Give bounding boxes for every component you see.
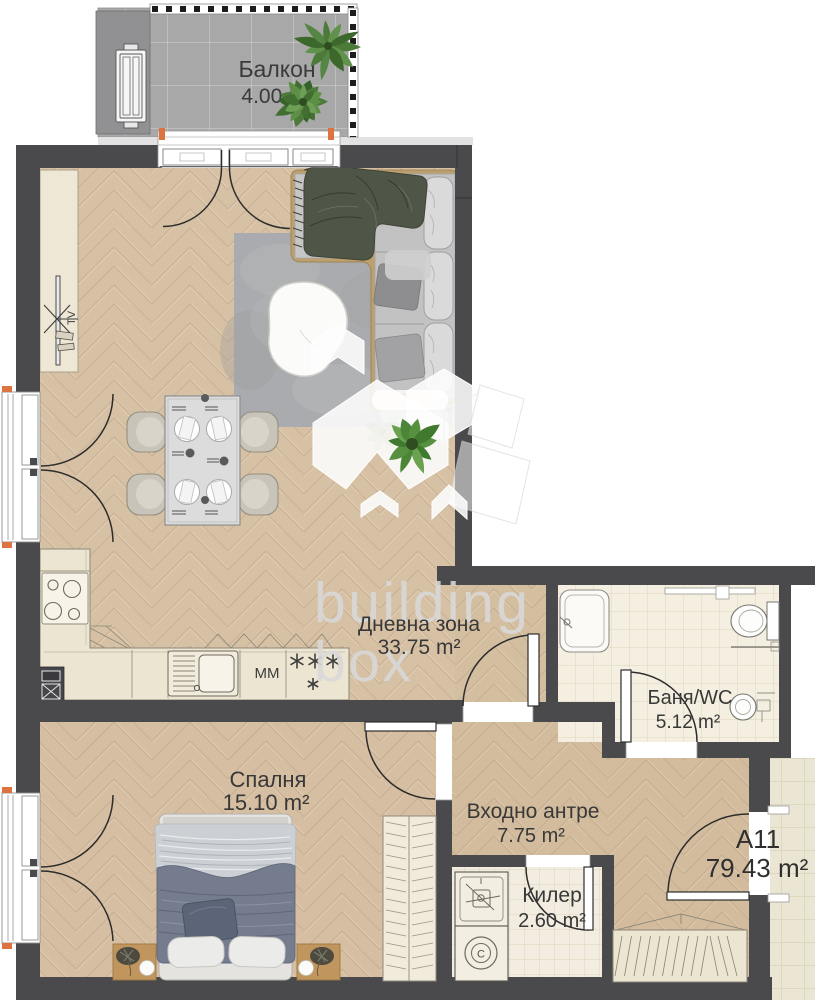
svg-text:15.10 m²: 15.10 m² [223, 790, 310, 815]
svg-text:5.12 m²: 5.12 m² [656, 712, 720, 733]
svg-text:7.75 m²: 7.75 m² [497, 825, 565, 847]
svg-text:TV: TV [66, 310, 78, 325]
svg-text:Килер: Килер [522, 884, 582, 907]
svg-text:Входно антре: Входно антре [467, 800, 600, 823]
svg-text:2.60 m²: 2.60 m² [518, 910, 586, 932]
svg-text:Дневна зона: Дневна зона [358, 613, 480, 636]
svg-text:Баня/WC: Баня/WC [648, 687, 733, 709]
svg-text:MM: MM [255, 665, 280, 682]
svg-text:Спалня: Спалня [230, 767, 307, 792]
svg-text:33.75 m²: 33.75 m² [378, 636, 461, 659]
svg-text:Балкон: Балкон [238, 56, 315, 82]
svg-text:79.43 m²: 79.43 m² [706, 853, 809, 883]
svg-text:А11: А11 [736, 824, 780, 854]
svg-text:C: C [477, 949, 485, 961]
